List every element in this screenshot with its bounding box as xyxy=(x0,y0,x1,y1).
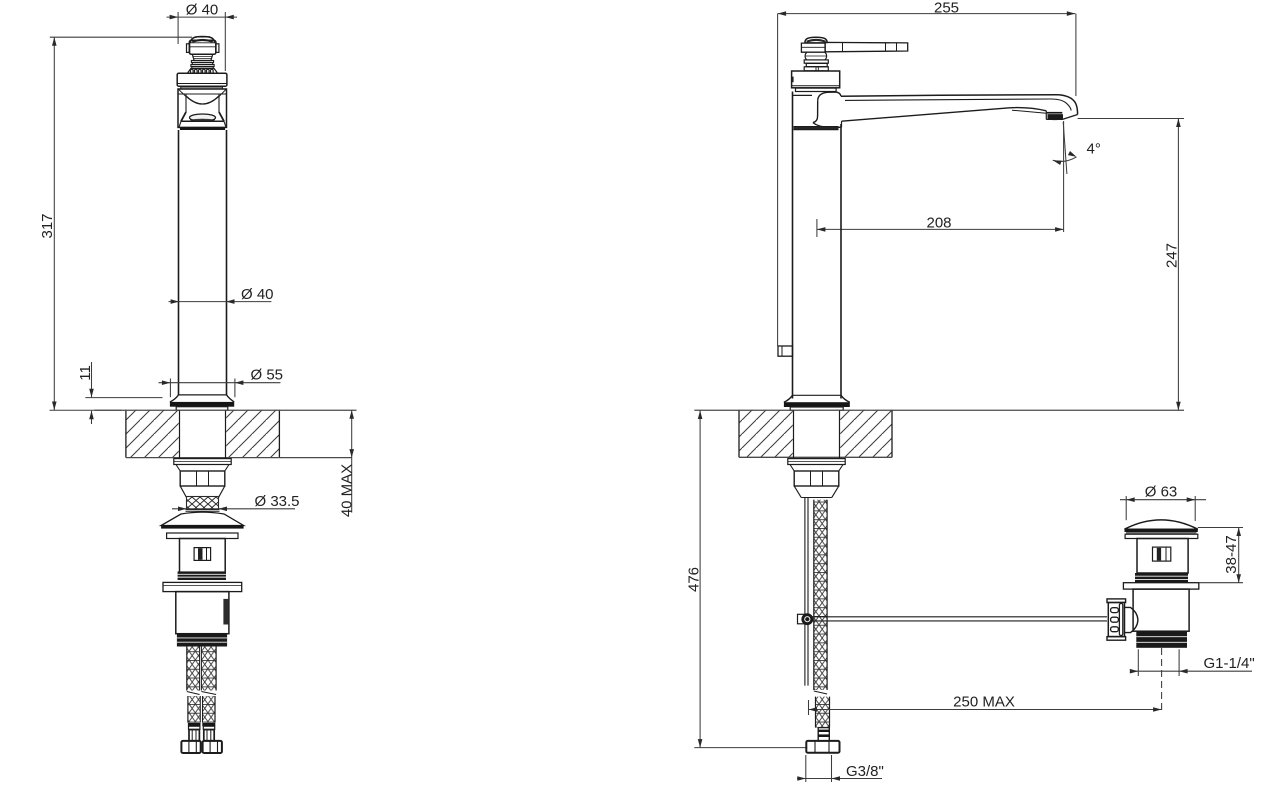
svg-text:38-47: 38-47 xyxy=(1223,535,1240,573)
svg-text:G1-1/4": G1-1/4" xyxy=(1204,655,1255,672)
svg-text:40 MAX: 40 MAX xyxy=(338,464,355,517)
svg-text:4°: 4° xyxy=(1087,141,1101,158)
svg-text:247: 247 xyxy=(1164,243,1181,268)
svg-text:250 MAX: 250 MAX xyxy=(953,694,1015,711)
svg-text:476: 476 xyxy=(686,567,703,592)
svg-text:G3/8": G3/8" xyxy=(846,763,884,780)
svg-text:11: 11 xyxy=(77,365,94,381)
svg-text:Ø 55: Ø 55 xyxy=(251,367,284,384)
svg-text:317: 317 xyxy=(39,213,56,238)
svg-text:Ø 40: Ø 40 xyxy=(186,2,219,19)
svg-text:Ø 40: Ø 40 xyxy=(241,286,274,303)
svg-text:Ø 63: Ø 63 xyxy=(1145,484,1178,501)
svg-text:208: 208 xyxy=(926,215,951,232)
svg-text:Ø 33.5: Ø 33.5 xyxy=(255,493,300,510)
svg-text:255: 255 xyxy=(934,0,959,17)
